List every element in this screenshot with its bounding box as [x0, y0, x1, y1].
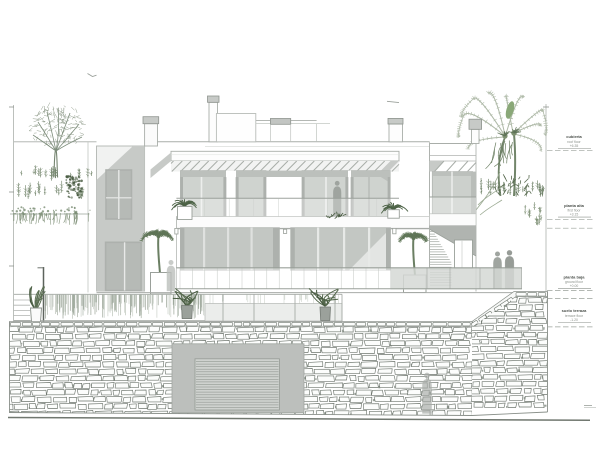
svg-text:+6.35: +6.35: [570, 144, 579, 148]
svg-text:cubierta: cubierta: [566, 134, 582, 139]
svg-text:planta alta: planta alta: [564, 203, 585, 208]
svg-text:suelo terraza: suelo terraza: [562, 308, 587, 313]
svg-text:+0.00: +0.00: [570, 284, 579, 288]
svg-text:+3.15: +3.15: [570, 212, 579, 216]
svg-text:planta baja: planta baja: [564, 274, 586, 279]
svg-text:-1.20: -1.20: [570, 318, 578, 322]
